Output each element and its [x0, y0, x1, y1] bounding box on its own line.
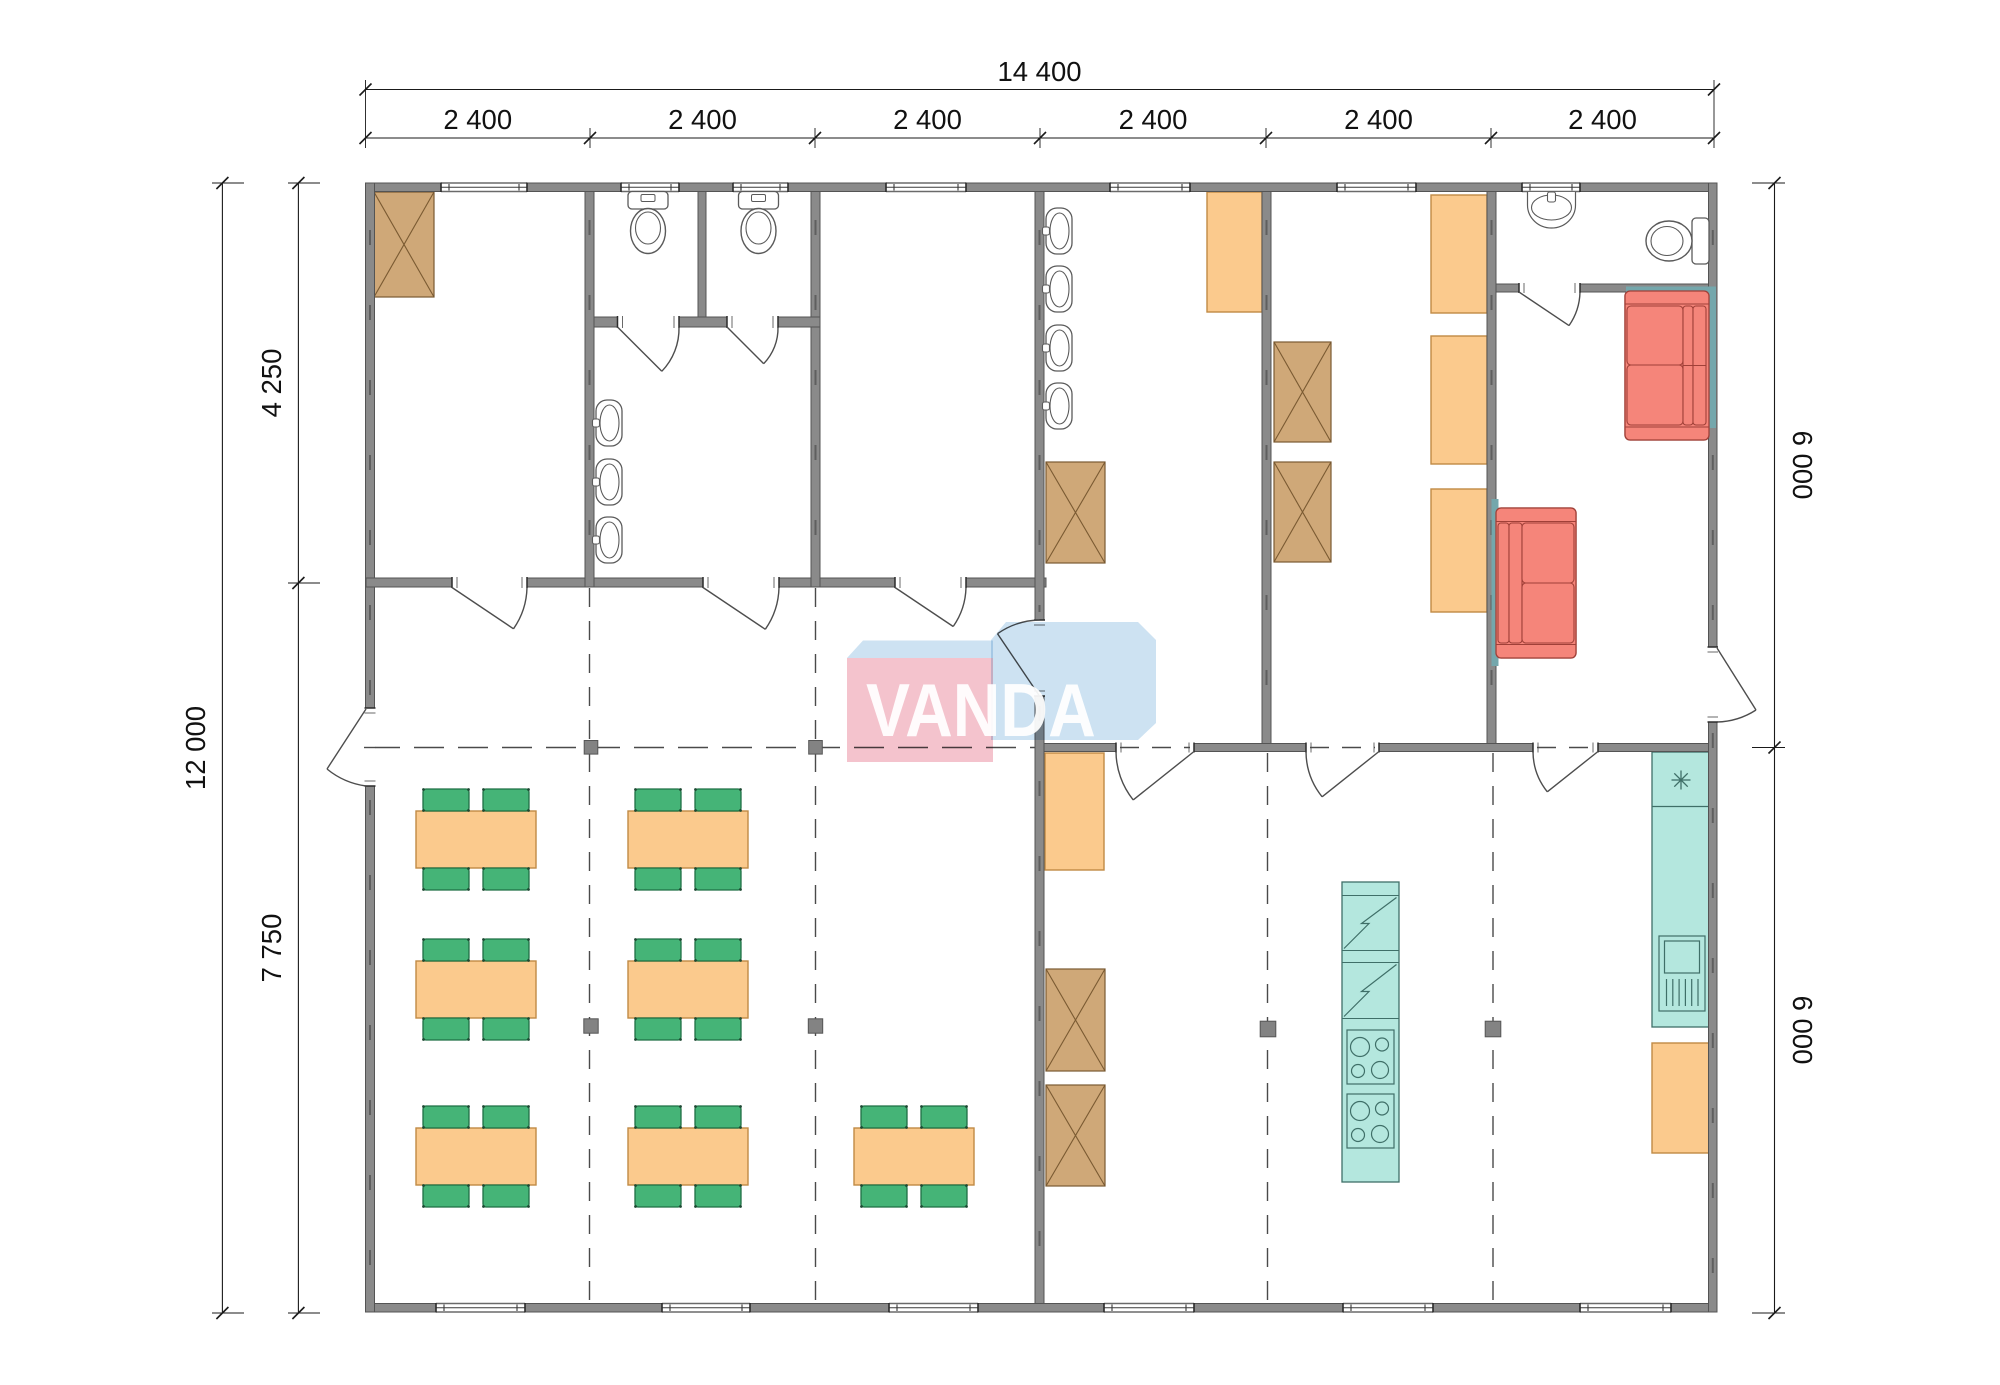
svg-text:2 400: 2 400 [893, 104, 962, 135]
svg-text:7 750: 7 750 [256, 914, 287, 983]
svg-text:14 400: 14 400 [997, 56, 1081, 87]
svg-text:2 400: 2 400 [1344, 104, 1413, 135]
svg-text:6 000: 6 000 [1787, 431, 1818, 500]
svg-text:2 400: 2 400 [1119, 104, 1188, 135]
svg-text:2 400: 2 400 [443, 104, 512, 135]
svg-text:6 000: 6 000 [1787, 996, 1818, 1065]
svg-text:2 400: 2 400 [668, 104, 737, 135]
svg-text:12 000: 12 000 [180, 706, 211, 790]
svg-text:VANDA: VANDA [866, 668, 1096, 752]
svg-text:4 250: 4 250 [256, 349, 287, 418]
svg-text:2 400: 2 400 [1568, 104, 1637, 135]
